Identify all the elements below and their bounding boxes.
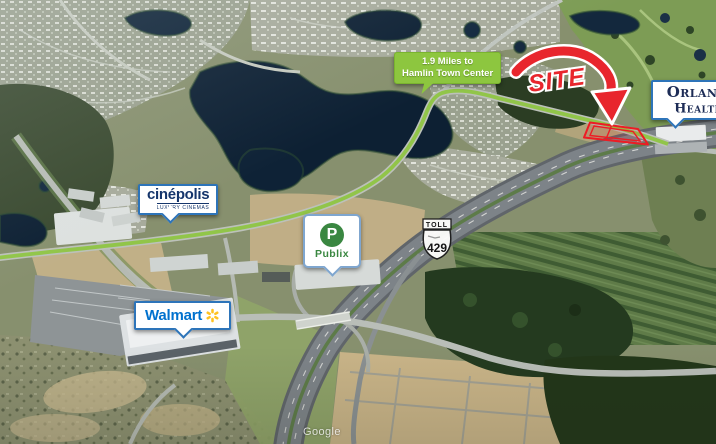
cinepolis-label: cinépolis LUXURY CINEMAS [138,184,218,215]
google-watermark: Google [303,426,341,438]
orlando-health-label: Orlando Health® [651,80,716,120]
lake [238,149,303,192]
aerial-map: SITE TOLL 429 1.9 Miles to Hamlin Town C… [0,0,716,444]
toll-429-shield-icon: TOLL 429 [423,219,451,259]
walmart-label: Walmart [134,301,231,330]
svg-text:429: 429 [427,241,447,255]
route-distance-line2: Hamlin Town Center [402,68,493,80]
route-distance-line1: 1.9 Miles to [402,56,493,68]
orlando-health-line2: Health® [674,99,716,115]
route-distance-label: 1.9 Miles to Hamlin Town Center [394,52,501,84]
svg-text:TOLL: TOLL [426,222,448,229]
cinepolis-name: cinépolis [147,187,209,203]
orlando-health-line1: Orlando [667,85,716,99]
publix-label: P Publix [303,214,361,268]
pond [514,41,526,53]
walmart-name: Walmart [145,307,202,324]
publix-monogram-icon: P [320,223,344,247]
walmart-spark-icon [205,308,220,323]
pond [464,22,480,38]
